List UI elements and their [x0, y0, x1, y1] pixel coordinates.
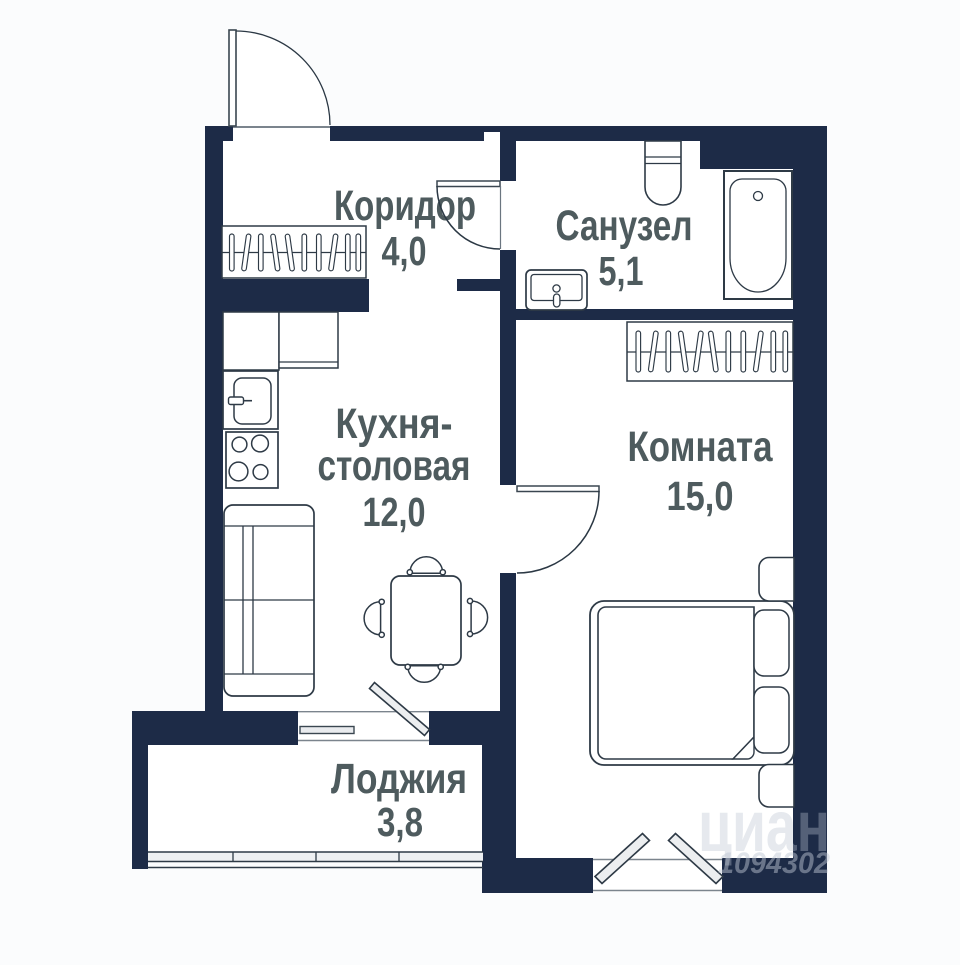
svg-text:12,0: 12,0	[363, 489, 426, 535]
svg-text:1094302: 1094302	[718, 847, 830, 880]
svg-text:Коридор: Коридор	[334, 182, 476, 230]
svg-text:4,0: 4,0	[382, 228, 427, 274]
svg-text:Санузел: Санузел	[556, 202, 693, 250]
svg-text:Комната: Комната	[628, 423, 774, 471]
svg-text:Кухня-: Кухня-	[336, 400, 453, 448]
svg-text:Лоджия: Лоджия	[331, 755, 467, 803]
svg-text:5,1: 5,1	[599, 248, 644, 294]
svg-text:3,8: 3,8	[377, 799, 423, 845]
svg-text:столовая: столовая	[318, 442, 471, 490]
svg-text:15,0: 15,0	[667, 473, 734, 519]
